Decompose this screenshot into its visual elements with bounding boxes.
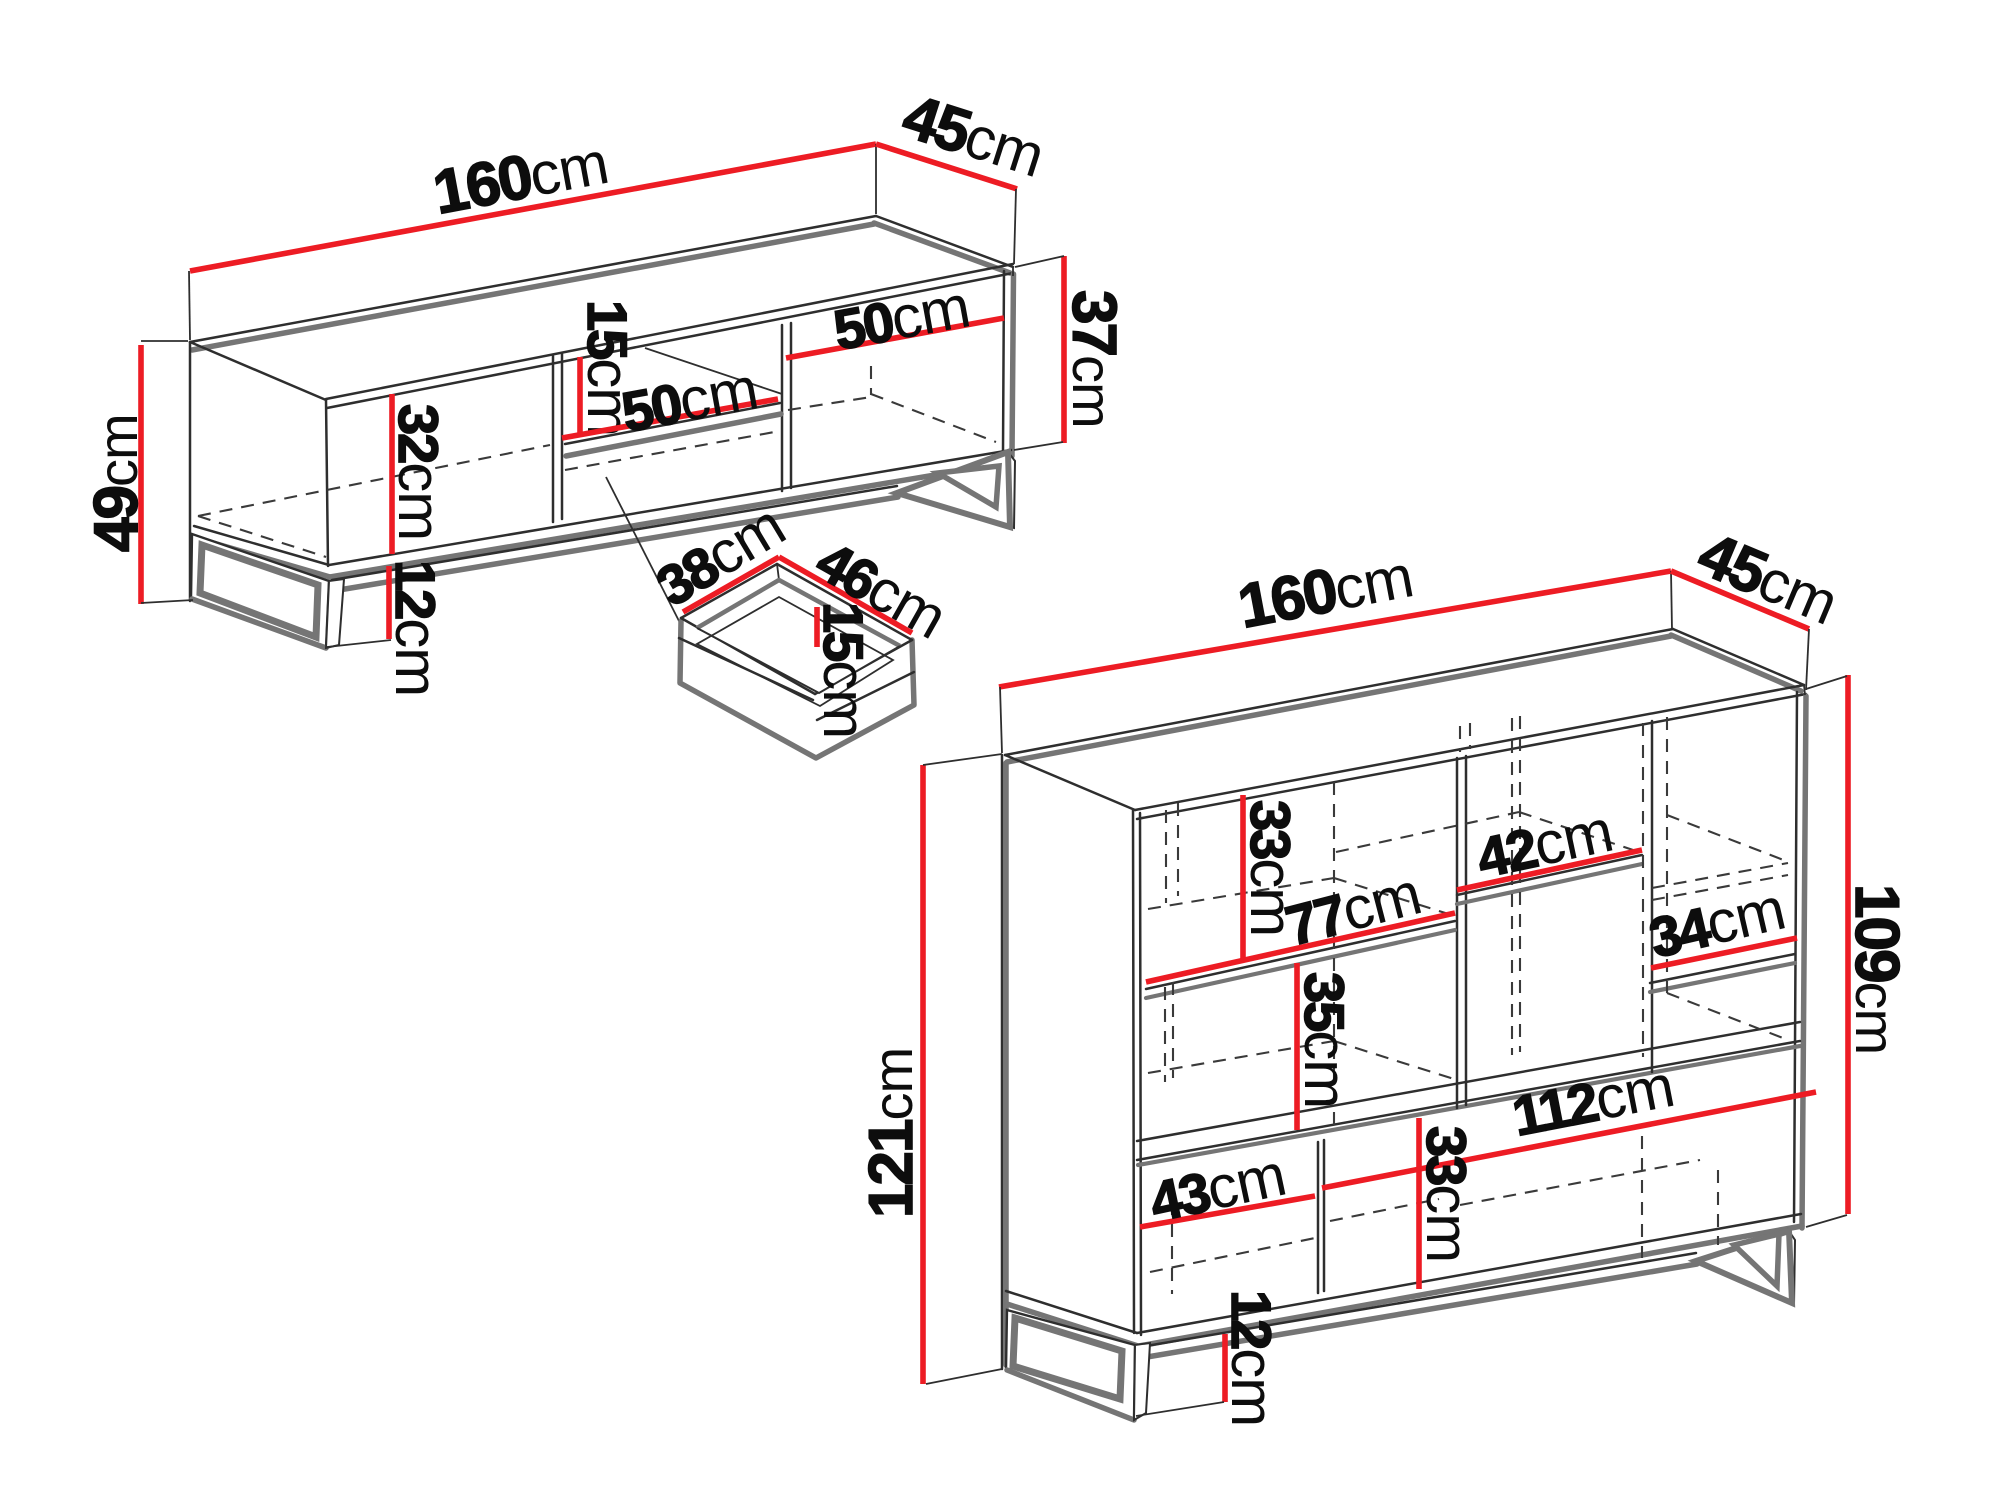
svg-text:109cm: 109cm (1842, 884, 1911, 1054)
svg-text:15cm: 15cm (811, 602, 878, 738)
svg-text:12cm: 12cm (1219, 1290, 1286, 1426)
svg-text:33cm: 33cm (1414, 1126, 1481, 1262)
svg-text:37cm: 37cm (1059, 290, 1128, 428)
svg-text:121cm: 121cm (857, 1048, 926, 1218)
svg-text:35cm: 35cm (1292, 972, 1359, 1108)
svg-text:49cm: 49cm (82, 414, 151, 552)
svg-text:12cm: 12cm (383, 560, 450, 696)
svg-text:32cm: 32cm (386, 404, 453, 540)
